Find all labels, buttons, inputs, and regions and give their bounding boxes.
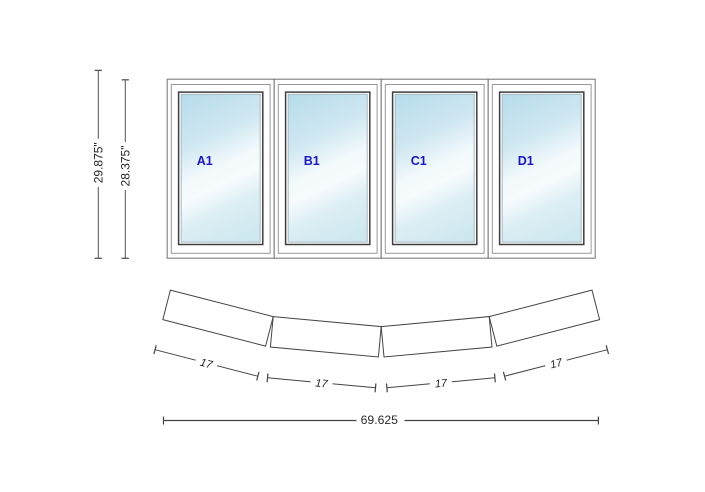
svg-text:A1: A1 [197,154,213,168]
svg-text:B1: B1 [304,154,320,168]
svg-text:D1: D1 [518,154,534,168]
svg-text:69.625: 69.625 [361,413,398,427]
svg-text:28.375": 28.375" [119,146,133,187]
svg-text:C1: C1 [411,154,427,168]
svg-text:17: 17 [434,377,448,390]
svg-text:17: 17 [315,377,329,390]
svg-text:29.875": 29.875" [92,142,106,183]
